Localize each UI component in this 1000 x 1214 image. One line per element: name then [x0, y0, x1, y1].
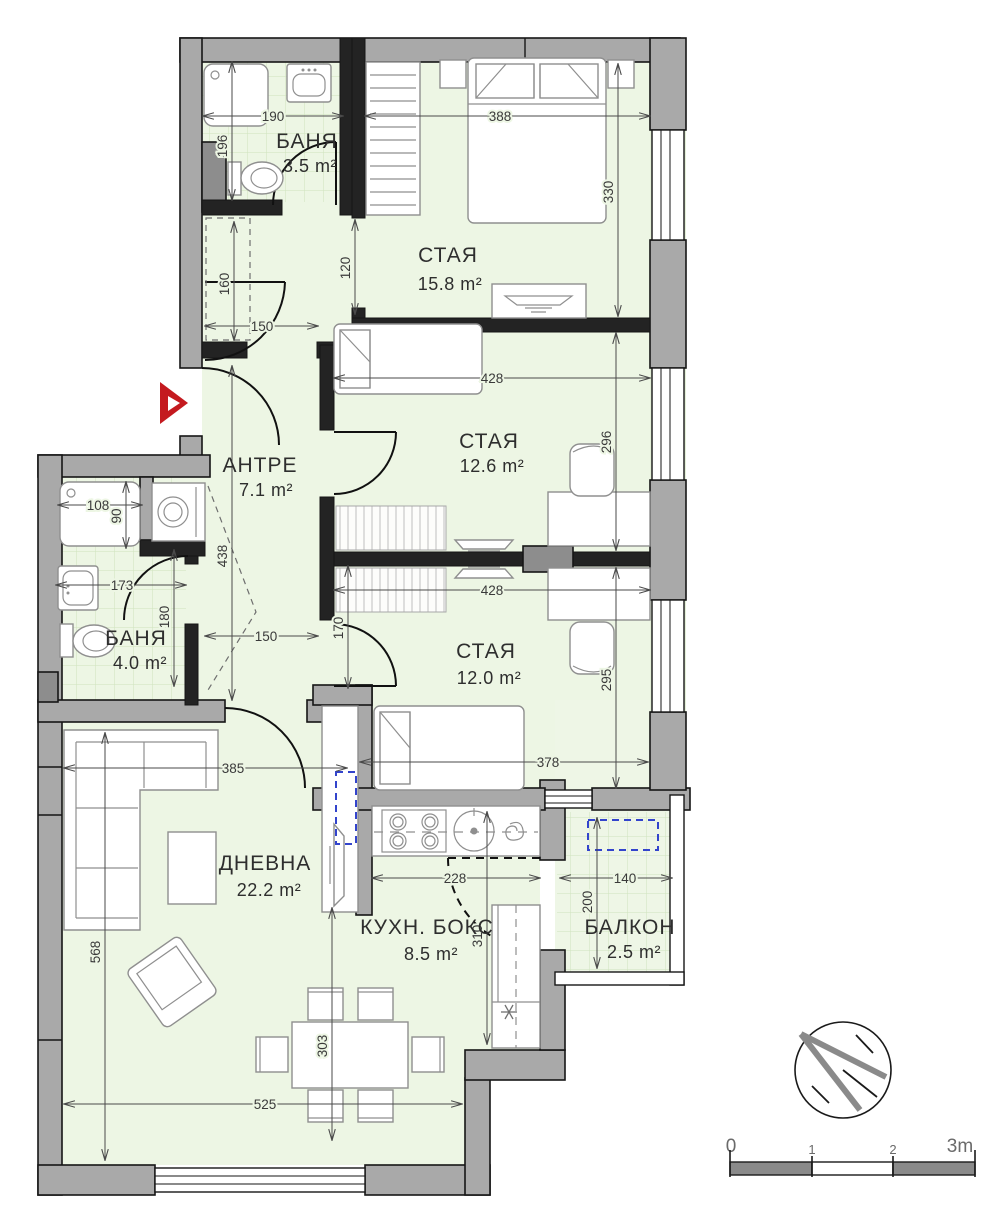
label-balcony: БАЛКОН	[584, 916, 675, 939]
dim-bedroom3-w: 428	[481, 583, 504, 598]
floor-plan-drawing: 190 196 388 330 120 160 150 428 296 428 …	[0, 0, 1000, 1214]
dim-hall-pass: 170	[331, 617, 346, 640]
scale-label-1: 1	[808, 1142, 815, 1157]
window-bedroom1	[652, 130, 684, 240]
desk-bedroom2	[548, 492, 650, 546]
dim-bath-left-h: 180	[157, 606, 172, 629]
area-bath-top: 3.5 m²	[283, 156, 337, 176]
dim-kitchen-w: 228	[444, 871, 467, 886]
area-bedroom3: 12.0 m²	[457, 668, 522, 688]
dim-bedroom1-h: 330	[601, 181, 616, 204]
dim-bedroom2-h: 296	[599, 431, 614, 454]
entrance-arrow	[160, 382, 188, 424]
single-bed-bedroom3	[374, 706, 524, 790]
sink-left	[58, 566, 98, 610]
window-bedroom3-balcony	[545, 790, 592, 808]
scale-label-0: 0	[726, 1136, 737, 1157]
dim-balcony-h: 200	[580, 891, 595, 914]
duct-shaft	[38, 672, 58, 702]
dim-bedroom1-w: 388	[489, 109, 512, 124]
scale-label-3m: 3m	[947, 1136, 973, 1157]
area-bath-left: 4.0 m²	[113, 653, 167, 673]
single-bed-bedroom2	[334, 324, 482, 394]
dim-living-w: 385	[222, 761, 245, 776]
wardrobe-bedroom2	[336, 506, 446, 550]
window-bedroom2	[652, 368, 684, 480]
window-living	[155, 1168, 365, 1192]
dim-bedroom3-h: 295	[599, 669, 614, 692]
scale-label-2: 2	[889, 1142, 896, 1157]
fridge-cabinet	[492, 905, 540, 1048]
balcony-railing	[670, 795, 684, 985]
dim-corridor-w: 150	[251, 319, 274, 334]
area-bedroom2: 12.6 m²	[460, 456, 525, 476]
washing-machine	[152, 483, 205, 541]
chair-bedroom3	[570, 622, 614, 674]
area-hallway: 7.1 m²	[239, 480, 293, 500]
toilet-top	[228, 162, 283, 195]
shower-left	[60, 482, 140, 546]
tv-bedroom3	[455, 567, 513, 578]
floor-plan-page: 190 196 388 330 120 160 150 428 296 428 …	[0, 0, 1000, 1214]
shower-top	[204, 64, 268, 126]
wardrobe-bedroom1	[366, 62, 420, 215]
dim-bath-left-shower-h: 90	[109, 508, 124, 523]
dim-bath-top-h: 196	[215, 135, 230, 158]
sink-top	[287, 64, 331, 102]
dim-balcony-w: 140	[614, 871, 637, 886]
dim-living-h: 568	[88, 941, 103, 964]
label-bath-top: БАНЯ	[276, 130, 338, 153]
label-living: ДНЕВНА	[219, 852, 312, 875]
dim-bedroom1-opening: 120	[338, 257, 353, 280]
dim-bedroom2-w: 428	[481, 371, 504, 386]
area-bedroom1: 15.8 m²	[418, 274, 483, 294]
dim-bath-left-w: 173	[111, 578, 134, 593]
north-compass-icon	[795, 1022, 891, 1118]
coffee-table	[168, 832, 216, 904]
area-balcony: 2.5 m²	[607, 942, 661, 962]
area-kitchen: 8.5 m²	[404, 944, 458, 964]
dim-hall-w: 150	[255, 629, 278, 644]
desk-bedroom3	[548, 568, 650, 620]
double-bed	[468, 58, 606, 223]
nightstand-right	[608, 60, 634, 88]
label-bath-left: БАНЯ	[105, 627, 167, 650]
label-bedroom3: СТАЯ	[456, 640, 516, 663]
dim-bedroom3-w2: 378	[537, 755, 560, 770]
tv-bedroom2	[455, 540, 513, 551]
dim-hall-h: 438	[215, 545, 230, 568]
label-bedroom1: СТАЯ	[418, 244, 478, 267]
balcony-railing	[555, 972, 684, 985]
scale-bar: 0 1 2 3m	[726, 1136, 975, 1177]
dim-bath-left-shower-w: 108	[87, 498, 110, 513]
area-living: 22.2 m²	[237, 880, 302, 900]
dresser-tv-bedroom1	[492, 284, 586, 318]
kitchen-counter	[372, 806, 540, 856]
tv-unit-living	[322, 706, 358, 912]
label-hallway: АНТРЕ	[222, 454, 297, 477]
dim-living-dining: 303	[315, 1035, 330, 1058]
label-kitchen: КУХН. БОКС	[360, 916, 494, 939]
nightstand-left	[440, 60, 466, 88]
dim-corridor-closet: 160	[217, 273, 232, 296]
dim-living-w2: 525	[254, 1097, 277, 1112]
window-bedroom3	[652, 600, 684, 712]
label-bedroom2: СТАЯ	[459, 430, 519, 453]
dim-bath-top-w: 190	[262, 109, 285, 124]
